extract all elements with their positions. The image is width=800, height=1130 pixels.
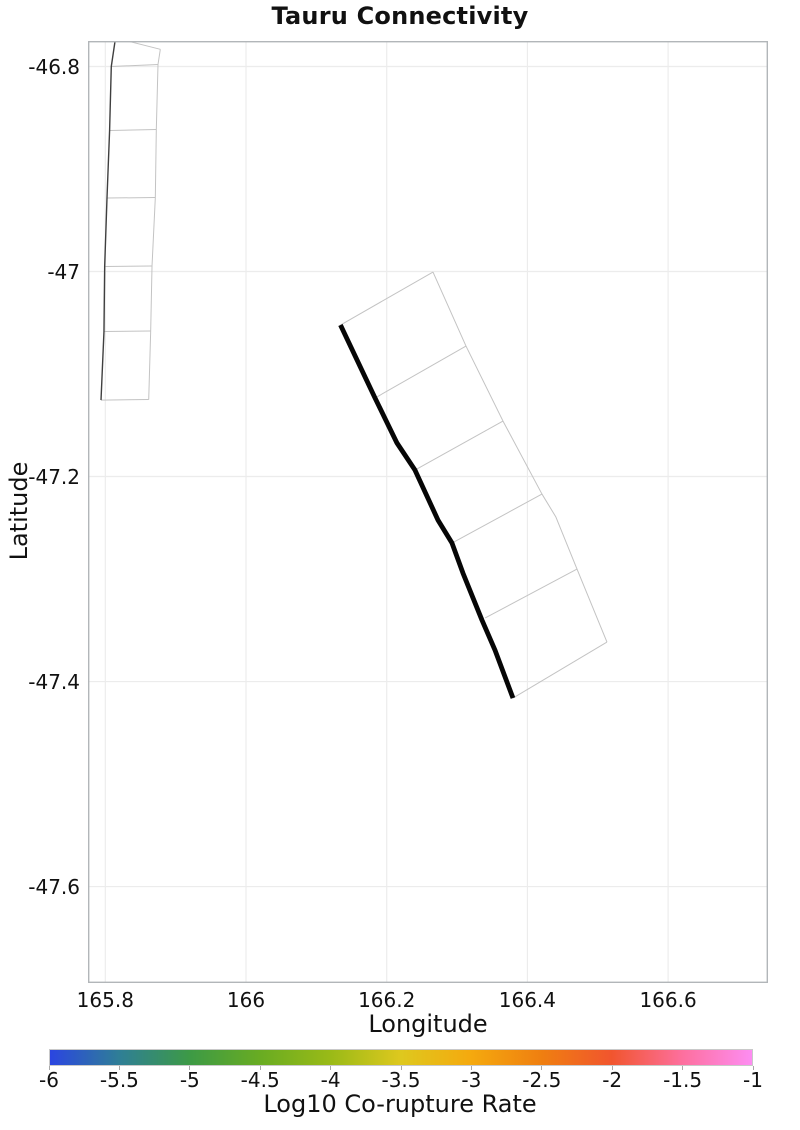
colorbar-tick-label: -3.5 [381,1068,420,1092]
west-fault-rungs [107,198,155,199]
colorbar-tick-label: -2.5 [522,1068,561,1092]
colorbar-tick-label: -2 [602,1068,622,1092]
figure: Tauru Connectivity Latitude Longitude -4… [0,0,800,1130]
x-tick-label: 166.6 [639,988,696,1012]
x-tick-label: 165.8 [77,988,134,1012]
x-tick-label: 166 [227,988,265,1012]
west-fault-rungs [104,331,151,332]
plot-area [88,41,768,983]
tauru-fault-outline-edge [433,272,607,642]
colorbar-tick-label: -5 [180,1068,200,1092]
y-tick-label: -47.4 [0,670,80,694]
west-fault-rungs [110,130,157,131]
colorbar-tick-label: -6 [39,1068,59,1092]
plot-frame [89,42,768,983]
colorbar-tick-label: -1.5 [663,1068,702,1092]
y-tick-label: -47.2 [0,465,80,489]
y-tick-label: -47.6 [0,875,80,899]
tauru-fault-rungs [375,346,466,398]
tauru-fault-rungs [452,494,542,543]
colorbar-tick-label: -4 [321,1068,341,1092]
y-tick-label: -47 [0,260,80,284]
west-fault-outline-edge [149,49,161,399]
west-fault-rungs [105,266,152,267]
west-fault-rungs [101,400,149,401]
tauru-fault-rungs [415,421,503,470]
x-tick-label: 166.4 [499,988,556,1012]
chart-title: Tauru Connectivity [0,2,800,30]
y-tick-label: -46.8 [0,55,80,79]
colorbar-tick-label: -5.5 [100,1068,139,1092]
west-fault-trace [101,41,115,400]
tauru-fault-rungs [485,569,577,618]
tauru-fault-trace [340,325,512,698]
x-axis-label: Longitude [88,1010,768,1038]
colorbar-tick-label: -1 [743,1068,763,1092]
colorbar-gradient [49,1049,753,1066]
colorbar-tick-label: -4.5 [241,1068,280,1092]
x-tick-label: 166.2 [358,988,415,1012]
colorbar-label: Log10 Co-rupture Rate [0,1090,800,1118]
colorbar-tick-label: -3 [461,1068,481,1092]
